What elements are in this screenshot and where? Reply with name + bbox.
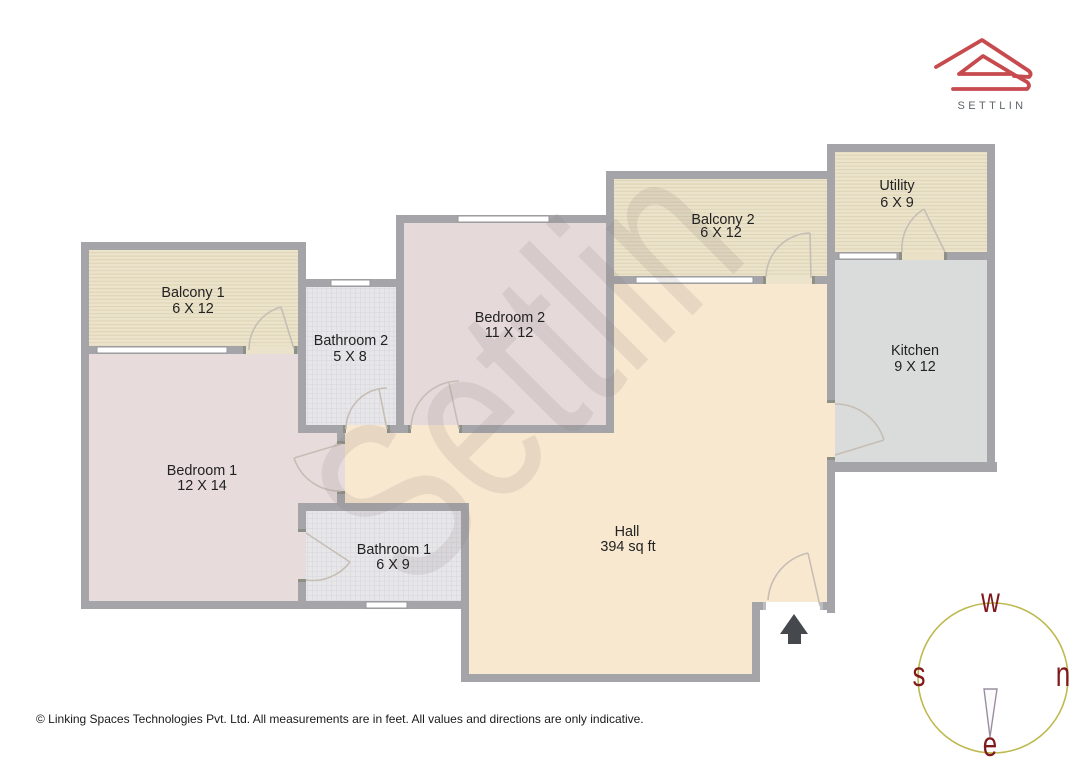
svg-text:Balcony 1: Balcony 1 xyxy=(161,285,224,301)
svg-text:Kitchen: Kitchen xyxy=(891,343,939,359)
svg-text:SETTLIN: SETTLIN xyxy=(957,100,1026,112)
svg-text:394 sq ft: 394 sq ft xyxy=(600,539,655,555)
svg-text:Bathroom 2: Bathroom 2 xyxy=(314,333,388,349)
svg-text:Bathroom 1: Bathroom 1 xyxy=(357,542,431,558)
svg-text:Utility: Utility xyxy=(879,178,915,194)
svg-text:5 X 8: 5 X 8 xyxy=(333,349,367,365)
svg-text:s: s xyxy=(913,654,926,694)
svg-text:n: n xyxy=(1056,654,1070,694)
svg-text:9 X 12: 9 X 12 xyxy=(894,359,936,375)
svg-text:© Linking Spaces Technologies: © Linking Spaces Technologies Pvt. Ltd. … xyxy=(36,712,644,726)
svg-text:12 X 14: 12 X 14 xyxy=(177,478,227,494)
svg-text:11 X 12: 11 X 12 xyxy=(485,325,534,341)
svg-text:w: w xyxy=(980,580,1000,620)
svg-text:6 X 9: 6 X 9 xyxy=(880,195,914,211)
svg-text:Hall: Hall xyxy=(615,524,640,540)
svg-text:Bedroom 1: Bedroom 1 xyxy=(167,463,237,479)
svg-text:6 X 12: 6 X 12 xyxy=(700,225,742,241)
svg-text:Bedroom 2: Bedroom 2 xyxy=(475,310,545,326)
svg-text:6 X 9: 6 X 9 xyxy=(376,557,410,573)
svg-text:6 X 12: 6 X 12 xyxy=(172,301,214,317)
